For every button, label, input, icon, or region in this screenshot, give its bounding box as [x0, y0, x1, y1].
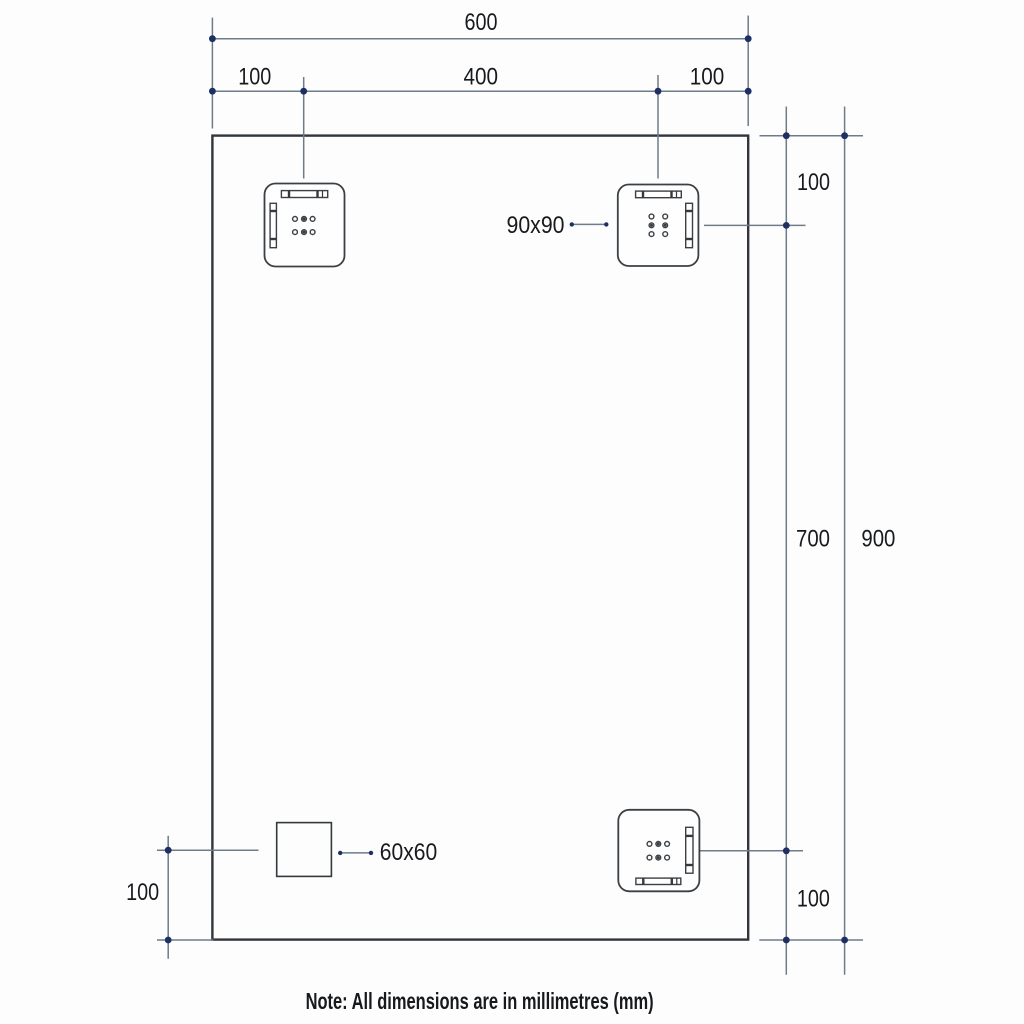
svg-text:100: 100	[797, 886, 830, 913]
svg-text:900: 900	[861, 526, 895, 553]
svg-text:100: 100	[238, 64, 271, 91]
svg-text:100: 100	[797, 169, 830, 196]
svg-text:100: 100	[126, 879, 159, 906]
svg-text:400: 400	[464, 64, 499, 91]
svg-text:90x90: 90x90	[507, 212, 565, 239]
svg-text:60x60: 60x60	[380, 839, 438, 866]
svg-text:100: 100	[690, 64, 725, 91]
svg-text:700: 700	[796, 526, 830, 553]
svg-text:600: 600	[465, 9, 498, 36]
svg-text:Note: All dimensions are in mi: Note: All dimensions are in millimetres …	[306, 988, 654, 1014]
